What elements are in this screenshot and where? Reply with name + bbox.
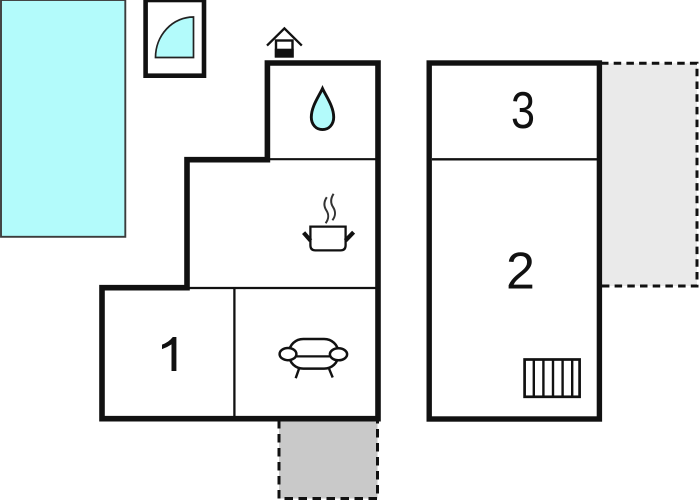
svg-text:3: 3 — [511, 82, 535, 140]
svg-text:2: 2 — [506, 243, 535, 301]
